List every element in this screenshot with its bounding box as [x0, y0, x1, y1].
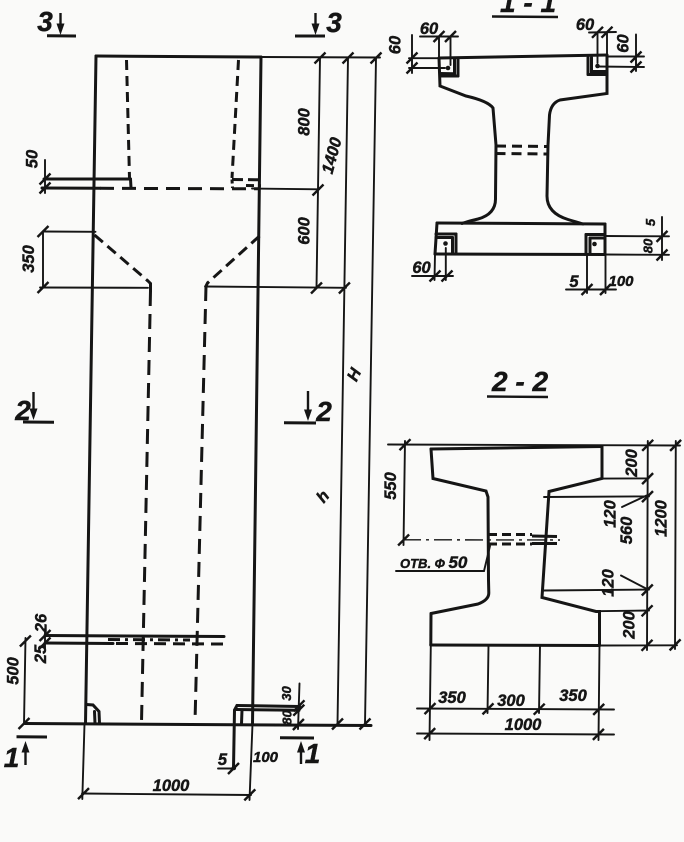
- svg-text:h: h: [313, 487, 333, 506]
- svg-text:550: 550: [382, 471, 400, 499]
- svg-text:80: 80: [280, 710, 295, 725]
- svg-text:50: 50: [24, 149, 42, 168]
- svg-text:26: 26: [33, 613, 51, 633]
- svg-text:120: 120: [600, 568, 618, 596]
- svg-text:600: 600: [296, 216, 314, 244]
- svg-text:60: 60: [412, 259, 431, 277]
- svg-text:500: 500: [5, 656, 23, 684]
- svg-text:80: 80: [641, 238, 656, 253]
- svg-text:300: 300: [497, 692, 525, 710]
- svg-text:350: 350: [438, 689, 466, 707]
- svg-text:3: 3: [37, 6, 53, 37]
- svg-text:ОТВ. Ф 50: ОТВ. Ф 50: [400, 553, 468, 572]
- svg-text:5: 5: [569, 273, 579, 291]
- svg-text:25: 25: [32, 644, 50, 664]
- svg-text:5: 5: [218, 751, 228, 769]
- svg-text:2: 2: [14, 395, 31, 426]
- svg-text:Н: Н: [344, 365, 366, 384]
- svg-text:2: 2: [315, 396, 332, 427]
- svg-text:1: 1: [305, 738, 321, 769]
- svg-text:1: 1: [4, 742, 20, 773]
- svg-text:100: 100: [253, 749, 279, 766]
- svg-text:2 - 2: 2 - 2: [491, 366, 548, 397]
- svg-text:100: 100: [608, 273, 634, 290]
- svg-text:1200: 1200: [653, 499, 671, 537]
- svg-text:1000: 1000: [153, 777, 191, 795]
- svg-text:200: 200: [623, 448, 641, 477]
- svg-text:60: 60: [615, 34, 633, 53]
- svg-text:1400: 1400: [319, 135, 346, 176]
- svg-text:350: 350: [559, 687, 587, 705]
- svg-text:60: 60: [387, 35, 405, 54]
- svg-text:3: 3: [326, 7, 342, 38]
- svg-text:350: 350: [20, 244, 38, 272]
- svg-text:60: 60: [576, 16, 595, 34]
- svg-text:560: 560: [618, 516, 636, 544]
- svg-text:200: 200: [621, 610, 639, 639]
- svg-text:30: 30: [279, 686, 294, 701]
- svg-text:800: 800: [296, 107, 314, 135]
- svg-text:5: 5: [643, 218, 658, 226]
- svg-text:60: 60: [420, 20, 439, 38]
- svg-text:1000: 1000: [505, 716, 543, 734]
- svg-text:120: 120: [602, 499, 620, 527]
- svg-text:1 - 1: 1 - 1: [500, 0, 556, 18]
